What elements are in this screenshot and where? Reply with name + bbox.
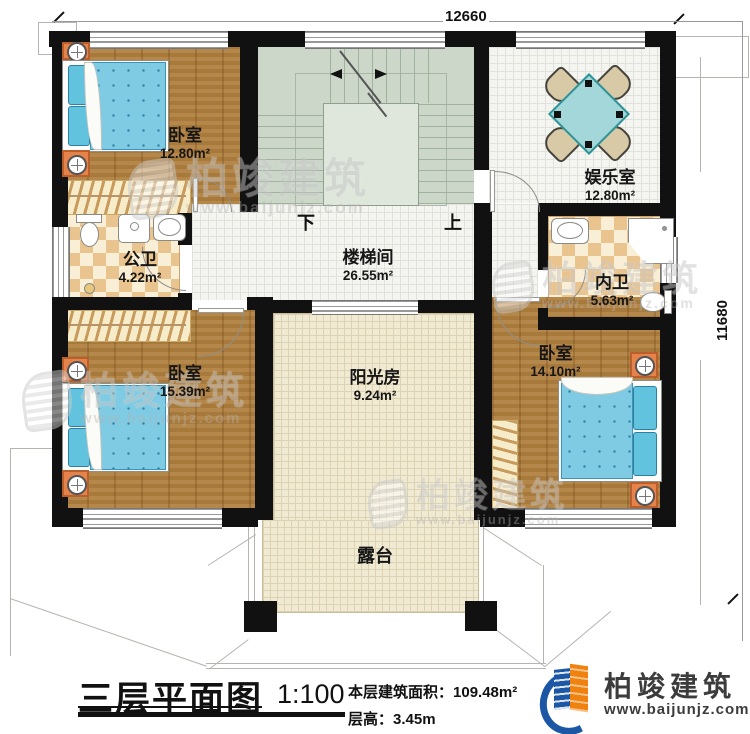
dimension-label-top: 12660	[443, 8, 489, 25]
room-name: 露台	[335, 546, 415, 567]
room-name: 卧室	[125, 364, 245, 384]
lamp-icon	[635, 486, 655, 506]
sink-basin	[158, 218, 181, 236]
roof-outline-diag-br2	[545, 611, 612, 667]
lamp-icon	[67, 475, 87, 495]
roof-outline-left-h	[10, 448, 52, 449]
nightstand	[62, 150, 90, 177]
dimension-label-right: 11680	[714, 298, 731, 343]
room-label-entertainment: 娱乐室 12.80m²	[550, 168, 670, 203]
roof-outline-right-v2	[700, 57, 701, 172]
stair-up-label: 上	[444, 209, 462, 235]
nightstand	[630, 352, 658, 378]
dimension-line-top	[52, 21, 742, 22]
lamp-icon	[67, 155, 87, 175]
lamp-icon	[635, 356, 655, 376]
wall-top-c	[445, 31, 516, 47]
room-name: 内卫	[572, 273, 652, 293]
nightstand	[630, 482, 658, 508]
floor-area-value: 109.48m²	[453, 684, 517, 701]
brand-url: www.baijunjz.com	[604, 701, 749, 718]
closet-bedroom-br	[492, 420, 518, 519]
table-corner	[616, 111, 623, 118]
room-label-stairwell: 楼梯间 26.55m²	[308, 248, 428, 283]
closet-rod-bl	[66, 324, 186, 326]
roof-outline-left-v	[10, 448, 11, 656]
room-label-sunroom: 阳光房 9.24m²	[320, 368, 430, 403]
brand-name: 柏竣建筑	[604, 673, 749, 701]
wall-ent-sunroom-spine	[474, 203, 492, 520]
closet-bedroom-tl	[63, 180, 191, 215]
room-name: 阳光房	[320, 368, 430, 388]
window-bedroom-br-bottom	[525, 508, 652, 529]
lamp-icon	[67, 361, 87, 381]
floor-plan-canvas: 柏竣建筑 www.baijunjz.com 柏竣建筑 www.baijunjz.…	[0, 0, 750, 734]
stair-steps-left	[258, 108, 323, 204]
roof-outline-right-v	[700, 360, 701, 605]
brand-block: 柏竣建筑 www.baijunjz.com	[540, 665, 749, 725]
floor-area-label: 本层建筑面积：	[348, 684, 453, 701]
leader-tick-br	[727, 593, 738, 604]
wall-bottom-bl-a	[52, 508, 83, 527]
pillow	[633, 432, 657, 476]
room-name: 楼梯间	[308, 248, 428, 268]
room-label-terrace: 露台	[335, 546, 415, 567]
drawing-scale: 1:100	[277, 679, 345, 710]
floor-corridor	[489, 204, 538, 297]
nightstand	[62, 470, 89, 497]
room-area: 15.39m²	[125, 384, 245, 400]
stair-landing	[323, 103, 419, 206]
title-underline-thick	[78, 712, 345, 717]
terrace-column-right	[465, 601, 497, 631]
wall-sunroom-left	[255, 300, 273, 520]
roof-outline-bottom-h2	[206, 668, 546, 669]
room-label-bedroom-tl: 卧室 12.80m²	[125, 126, 245, 161]
window-stairwell-top	[305, 31, 445, 49]
closet-bedroom-bl	[63, 310, 191, 342]
room-label-bedroom-br: 卧室 14.10m²	[498, 344, 613, 379]
wall-bottom-br-b	[652, 508, 676, 527]
wall-top-b	[228, 31, 305, 47]
room-name: 公卫	[95, 250, 185, 270]
leader-tick-tr	[673, 13, 684, 24]
wall-sunroom-top-b	[418, 300, 474, 313]
room-area: 9.24m²	[320, 388, 430, 404]
title-underline-thin	[78, 706, 262, 708]
terrace-column-left	[244, 601, 277, 632]
room-name: 卧室	[498, 344, 613, 364]
terrace-diag-col-l	[210, 639, 249, 669]
stair-down-label: 下	[297, 209, 315, 235]
pillow	[633, 386, 657, 430]
window-public-bath-left	[52, 227, 70, 297]
wall-ensuite-left-a	[538, 216, 548, 270]
window-sunroom-slider	[312, 300, 418, 315]
toilet-bowl	[80, 222, 99, 247]
room-area: 4.22m²	[95, 270, 185, 286]
table-corner	[585, 141, 592, 148]
room-label-public-bath: 公卫 4.22m²	[95, 250, 185, 285]
wall-ensuite-top	[538, 203, 676, 216]
terrace-parapet-left2	[254, 527, 255, 605]
floor-height-value: 3.45m	[393, 711, 436, 728]
brand-logo-icon	[540, 665, 596, 725]
closet-rod-tl	[66, 195, 186, 197]
room-label-bedroom-bl: 卧室 15.39m²	[125, 364, 245, 399]
toilet-tank	[664, 290, 672, 314]
window-bedroom-tl-top	[90, 31, 228, 49]
room-area: 12.80m²	[550, 188, 670, 204]
floor-height-label: 层高：	[348, 711, 393, 728]
roof-outline-bottom-h1	[206, 663, 546, 664]
nightstand	[62, 42, 90, 60]
floor-area-text: 本层建筑面积：109.48m²	[348, 681, 517, 702]
wall-public-bath-bottom	[52, 297, 192, 310]
room-label-ensuite: 内卫 5.63m²	[572, 273, 652, 308]
dimension-line-right	[742, 21, 743, 641]
mattress	[561, 383, 633, 479]
window-entertainment-top	[516, 31, 645, 49]
wall-bottom-br-a	[480, 508, 525, 527]
nightstand	[62, 357, 89, 382]
roof-outline-diag-bl	[10, 598, 207, 667]
bathtub-drain	[662, 226, 667, 231]
washer-door	[130, 222, 139, 231]
room-name: 卧室	[125, 126, 245, 146]
room-area: 14.10m²	[498, 364, 613, 380]
sink-basin	[557, 222, 583, 239]
roof-outline-mid-right-v	[543, 565, 544, 664]
table-corner	[585, 80, 592, 87]
wall-sunroom-top-a	[273, 300, 312, 313]
stair-arrow-right-icon	[375, 69, 387, 79]
stair-steps-right	[417, 103, 474, 204]
terrace-diag-right	[483, 527, 542, 566]
room-area: 12.80m²	[125, 146, 245, 162]
floor-drain	[84, 283, 95, 294]
wall-entertainment-left	[474, 47, 489, 170]
terrace-diag-col-r	[497, 630, 546, 667]
room-area: 26.55m²	[308, 268, 428, 284]
room-name: 娱乐室	[550, 168, 670, 188]
wall-bottom-bl-b	[222, 508, 258, 527]
floor-height-text: 层高：3.45m	[348, 708, 436, 729]
window-bedroom-bl-bottom	[83, 508, 222, 529]
table-corner	[554, 111, 561, 118]
room-area: 5.63m²	[572, 293, 652, 309]
wall-ensuite-bottom	[538, 317, 676, 330]
stair-arrow-left-icon	[330, 69, 342, 79]
terrace-parapet-right2	[483, 527, 484, 603]
lamp-icon	[67, 42, 87, 62]
floor-sunroom	[273, 313, 476, 521]
